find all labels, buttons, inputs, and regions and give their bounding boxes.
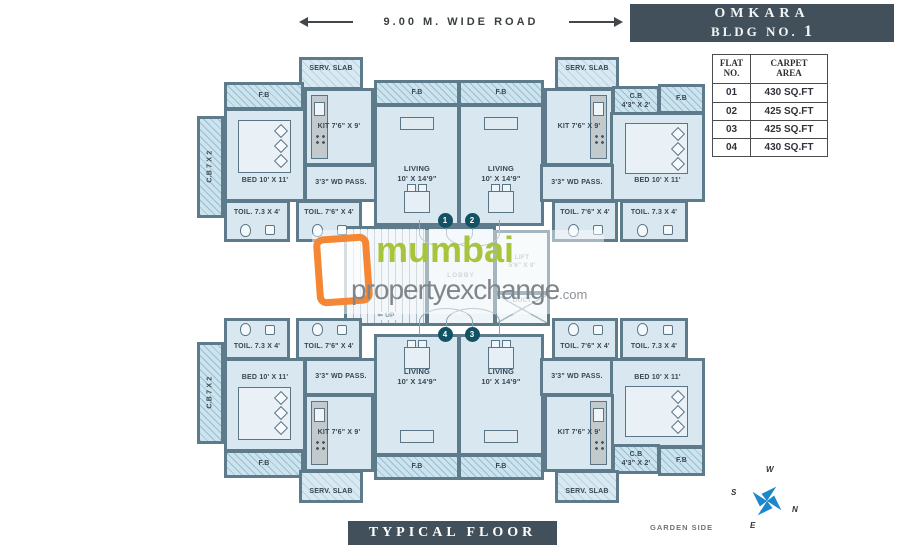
chair-icon bbox=[502, 184, 511, 192]
room-label: KIT 7'6" X 9' bbox=[318, 122, 361, 131]
room-label: BED 10' X 11' bbox=[227, 373, 303, 382]
pass-3: 3'3" WD PASS. bbox=[540, 358, 614, 396]
serv-slab-2: SERV. SLAB bbox=[555, 57, 619, 90]
room-label: F.B bbox=[258, 91, 269, 100]
room-label: 3'3" WD PASS. bbox=[315, 372, 366, 381]
basin-icon bbox=[593, 225, 603, 235]
compass-north-label: N bbox=[792, 505, 798, 514]
sink-icon bbox=[593, 408, 604, 422]
compass-south-label: S bbox=[731, 488, 736, 497]
pass-1: 3'3" WD PASS. bbox=[304, 164, 378, 202]
chair-icon bbox=[491, 184, 500, 192]
serv-slab-3: SERV. SLAB bbox=[555, 470, 619, 503]
dining-table-icon bbox=[404, 191, 430, 213]
kit-4: KIT 7'6" X 9' bbox=[304, 394, 374, 472]
room-label: C.B4'3" X 2' bbox=[622, 450, 651, 468]
room-label: BED 10' X 11' bbox=[613, 176, 702, 185]
room-label: KIT 7'6" X 9' bbox=[558, 428, 601, 437]
toil-3a: TOIL. 7'6" X 4' bbox=[552, 318, 618, 360]
room-label: F.B bbox=[676, 456, 687, 465]
room-label: LIVING10' X 14'9" bbox=[377, 164, 457, 184]
sink-icon bbox=[593, 102, 604, 116]
stove-icon bbox=[313, 132, 325, 145]
toilet-icon bbox=[312, 323, 323, 336]
floor-plan-sheet: 9.00 M. WIDE ROAD OMKARA BLDG NO. 1 FLAT… bbox=[0, 0, 900, 550]
room-label: C.B 7 X 2 bbox=[206, 377, 215, 409]
cb-1: C.B 7 X 2 bbox=[197, 116, 224, 218]
flat-number-badge: 2 bbox=[465, 213, 480, 228]
toilet-icon bbox=[568, 323, 579, 336]
flat-number-badge: 4 bbox=[438, 327, 453, 342]
bed-4: BED 10' X 11' bbox=[224, 358, 306, 452]
toilet-icon bbox=[637, 323, 648, 336]
room-label: TOIL. 7'6" X 4' bbox=[555, 342, 615, 351]
pillow-icon bbox=[671, 142, 685, 156]
basin-icon bbox=[265, 325, 275, 335]
fb-2: F.B bbox=[658, 84, 705, 114]
stair: ⇐ UP bbox=[344, 226, 428, 326]
basin-icon bbox=[337, 325, 347, 335]
fb-bed-4: F.B bbox=[224, 450, 304, 478]
pillow-icon bbox=[671, 420, 685, 434]
pillow-icon bbox=[274, 154, 288, 168]
dining-table-icon bbox=[488, 191, 514, 213]
sink-icon bbox=[314, 102, 325, 116]
fb-liv-2: F.B bbox=[458, 80, 544, 106]
lift: LIFT5'6" X 9' bbox=[494, 230, 550, 294]
flat-number-badge: 3 bbox=[465, 327, 480, 342]
compass-star-icon bbox=[743, 477, 791, 525]
room-label: 3'3" WD PASS. bbox=[551, 178, 602, 187]
toil-1a: TOIL. 7.3 X 4' bbox=[224, 200, 290, 242]
stove-icon bbox=[592, 438, 604, 451]
pillow-icon bbox=[671, 127, 685, 141]
room-label: SERV. SLAB bbox=[558, 487, 616, 496]
pass-4: 3'3" WD PASS. bbox=[304, 358, 378, 396]
dining-table-icon bbox=[404, 347, 430, 369]
room-label: C.B 7 X 2 bbox=[206, 151, 215, 183]
room-label: BED 10' X 11' bbox=[613, 373, 702, 382]
cb-4: C.B 7 X 2 bbox=[197, 342, 224, 444]
room-label: TOIL. 7.3 X 4' bbox=[623, 342, 685, 351]
compass-east-label: E bbox=[750, 521, 755, 530]
pillow-icon bbox=[274, 139, 288, 153]
room-label: SERV. SLAB bbox=[302, 64, 360, 73]
pass-2: 3'3" WD PASS. bbox=[540, 164, 614, 202]
pillow-icon bbox=[274, 124, 288, 138]
kit-3: KIT 7'6" X 9' bbox=[544, 394, 614, 472]
room-label: F.B bbox=[258, 459, 269, 468]
room-label: KIT 7'6" X 9' bbox=[558, 122, 601, 131]
flat-number-badge: 1 bbox=[438, 213, 453, 228]
bed-icon bbox=[625, 123, 687, 173]
fb-bed-1: F.B bbox=[224, 82, 304, 110]
bed-1: BED 10' X 11' bbox=[224, 108, 306, 202]
toil-4a: TOIL. 7.3 X 4' bbox=[224, 318, 290, 360]
room-label: TOIL. 7'6" X 4' bbox=[299, 208, 359, 217]
room-label: TOIL. 7.3 X 4' bbox=[227, 208, 287, 217]
kit-1: KIT 7'6" X 9' bbox=[304, 88, 374, 166]
pillow-icon bbox=[671, 157, 685, 171]
toilet-icon bbox=[240, 323, 251, 336]
sink-icon bbox=[314, 408, 325, 422]
compass-rose: W S N E bbox=[728, 463, 806, 537]
pillow-icon bbox=[274, 391, 288, 405]
basin-icon bbox=[337, 225, 347, 235]
sheet-title: TYPICAL FLOOR PLAN bbox=[348, 521, 557, 545]
room-label: F.B bbox=[411, 462, 422, 471]
chair-icon bbox=[407, 184, 416, 192]
room-label: TOIL. 7'6" X 4' bbox=[555, 208, 615, 217]
pillow-icon bbox=[671, 390, 685, 404]
room-label: C.B4'3" X 2' bbox=[622, 92, 651, 110]
bed-2: BED 10' X 11' bbox=[610, 112, 705, 202]
room-label: SERV. SLAB bbox=[302, 487, 360, 496]
basin-icon bbox=[663, 225, 673, 235]
chair-icon bbox=[502, 340, 511, 348]
garden-side-label: GARDEN SIDE bbox=[650, 523, 713, 532]
bed-icon bbox=[238, 120, 291, 173]
room-label: LOBBY bbox=[447, 272, 475, 280]
room-label: KIT 7'6" X 9' bbox=[318, 428, 361, 437]
toil-2a: TOIL. 7'6" X 4' bbox=[552, 200, 618, 242]
toilet-icon bbox=[637, 224, 648, 237]
stove-icon bbox=[592, 132, 604, 145]
toil-2b: TOIL. 7.3 X 4' bbox=[620, 200, 688, 242]
pillow-icon bbox=[274, 421, 288, 435]
chair-icon bbox=[491, 340, 500, 348]
toilet-icon bbox=[312, 224, 323, 237]
toilet-icon bbox=[568, 224, 579, 237]
compass-west-label: W bbox=[766, 465, 774, 474]
bed-3: BED 10' X 11' bbox=[610, 358, 705, 448]
serv-slab-1: SERV. SLAB bbox=[299, 57, 363, 90]
room-label: DUCT bbox=[497, 297, 547, 305]
dining-table-icon bbox=[488, 347, 514, 369]
room-label: 3'3" WD PASS. bbox=[551, 372, 602, 381]
liv-2: LIVING10' X 14'9" bbox=[458, 104, 544, 226]
chair-icon bbox=[418, 340, 427, 348]
room-label: F.B bbox=[495, 88, 506, 97]
room-label: ⇐ UP bbox=[347, 312, 425, 320]
room-label: TOIL. 7.3 X 4' bbox=[623, 208, 685, 217]
chair-icon bbox=[418, 184, 427, 192]
basin-icon bbox=[663, 325, 673, 335]
sofa-icon bbox=[400, 117, 434, 130]
fb-liv-4: F.B bbox=[374, 454, 460, 480]
room-label: LIVING10' X 14'9" bbox=[377, 367, 457, 387]
room-label: SERV. SLAB bbox=[558, 64, 616, 73]
room-label: F.B bbox=[495, 462, 506, 471]
basin-icon bbox=[265, 225, 275, 235]
liv-3: LIVING10' X 14'9" bbox=[458, 334, 544, 456]
stove-icon bbox=[313, 438, 325, 451]
bed-icon bbox=[625, 386, 687, 436]
kit-2: KIT 7'6" X 9' bbox=[544, 88, 614, 166]
cb-3: C.B4'3" X 2' bbox=[612, 444, 660, 474]
liv-1: LIVING10' X 14'9" bbox=[374, 104, 460, 226]
room-label: 3'3" WD PASS. bbox=[315, 178, 366, 187]
room-label: TOIL. 7'6" X 4' bbox=[299, 342, 359, 351]
room-label: LIVING10' X 14'9" bbox=[461, 164, 541, 184]
sofa-icon bbox=[484, 430, 518, 443]
fb-liv-3: F.B bbox=[458, 454, 544, 480]
room-label: LIVING10' X 14'9" bbox=[461, 367, 541, 387]
bed-icon bbox=[238, 387, 291, 440]
fb-3: F.B bbox=[658, 446, 705, 476]
room-label: LIFT5'6" X 9' bbox=[509, 254, 536, 271]
duct: DUCT bbox=[494, 292, 550, 326]
chair-icon bbox=[407, 340, 416, 348]
room-label: F.B bbox=[676, 94, 687, 103]
pillow-icon bbox=[671, 405, 685, 419]
room-label: F.B bbox=[411, 88, 422, 97]
serv-slab-4: SERV. SLAB bbox=[299, 470, 363, 503]
toilet-icon bbox=[240, 224, 251, 237]
room-label: TOIL. 7.3 X 4' bbox=[227, 342, 287, 351]
sofa-icon bbox=[400, 430, 434, 443]
liv-4: LIVING10' X 14'9" bbox=[374, 334, 460, 456]
toil-4b: TOIL. 7'6" X 4' bbox=[296, 318, 362, 360]
pillow-icon bbox=[274, 406, 288, 420]
basin-icon bbox=[593, 325, 603, 335]
sofa-icon bbox=[484, 117, 518, 130]
fb-liv-1: F.B bbox=[374, 80, 460, 106]
room-label: BED 10' X 11' bbox=[227, 176, 303, 185]
toil-3b: TOIL. 7.3 X 4' bbox=[620, 318, 688, 360]
